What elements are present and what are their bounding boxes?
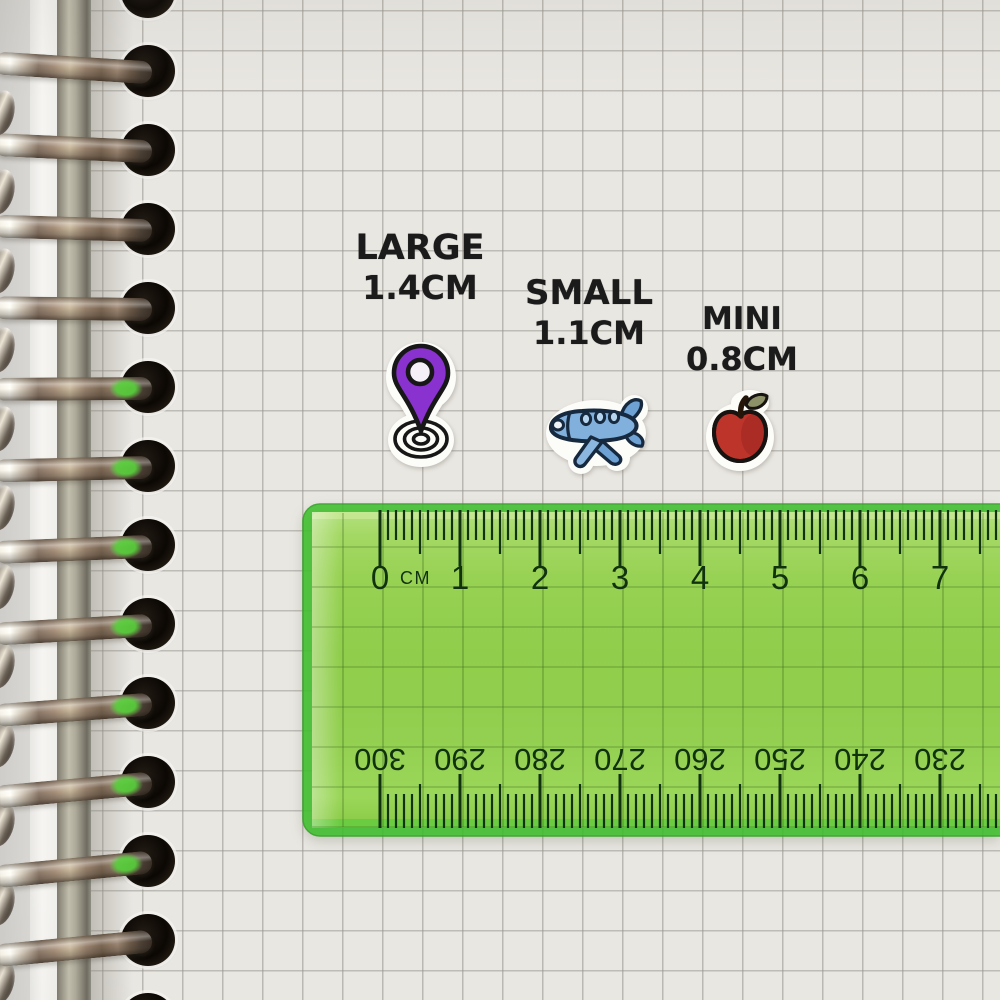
label-small: SMALL 1.1CM [525,273,653,353]
label-mini-size: 0.8CM [686,339,798,379]
spiral-ring [0,215,152,243]
label-small-name: SMALL [525,273,653,313]
spiral-ring [0,771,153,808]
location-pin-sticker [381,340,461,470]
svg-text:1: 1 [451,559,469,596]
spiral-ring [0,296,152,321]
spiral-ring [0,377,152,401]
label-large-size: 1.4CM [356,268,485,308]
ruler-unit-label: CM [400,568,431,588]
spiral-coil-edge [0,482,19,533]
svg-text:270: 270 [594,742,646,777]
label-small-size: 1.1CM [525,313,653,353]
airplane-sticker [541,394,653,476]
ruler-body [312,512,1000,828]
spiral-coil-edge [0,166,19,217]
svg-text:4: 4 [691,559,709,596]
svg-text:250: 250 [754,742,806,777]
spiral-ring [0,929,153,967]
spiral-ring [0,850,153,888]
svg-text:5: 5 [771,559,789,596]
svg-text:240: 240 [834,742,886,777]
label-mini-name: MINI [686,299,798,339]
spiral-coil-edge [0,561,19,612]
svg-text:260: 260 [674,742,726,777]
ruler: 01234567300290280270260250240230CM [300,497,1000,843]
spiral-coil-edge [0,245,19,296]
spiral-coil-edge [0,324,19,375]
apple-icon [714,394,767,461]
svg-text:3: 3 [611,559,629,596]
label-large-name: LARGE [356,228,485,268]
svg-text:280: 280 [514,742,566,777]
spiral-ring [0,456,152,483]
punch-hole [121,993,175,1000]
apple-sticker [700,388,780,472]
spiral-coil-edge [0,87,19,138]
svg-text:7: 7 [931,559,949,596]
label-large: LARGE 1.4CM [356,228,485,308]
svg-text:0: 0 [371,559,389,596]
spiral-coil-edge [0,403,19,454]
svg-text:6: 6 [851,559,869,596]
svg-text:2: 2 [531,559,549,596]
punch-hole [121,0,175,18]
svg-text:230: 230 [914,742,966,777]
notebook-photo: LARGE 1.4CM SMALL 1.1CM MINI 0.8CM [0,0,1000,1000]
spiral-coil-edge [0,719,19,770]
spiral-coil-edge [0,640,19,691]
svg-text:290: 290 [434,742,486,777]
svg-text:300: 300 [354,742,406,777]
pin-hole-icon [408,360,432,384]
label-mini: MINI 0.8CM [686,299,798,379]
